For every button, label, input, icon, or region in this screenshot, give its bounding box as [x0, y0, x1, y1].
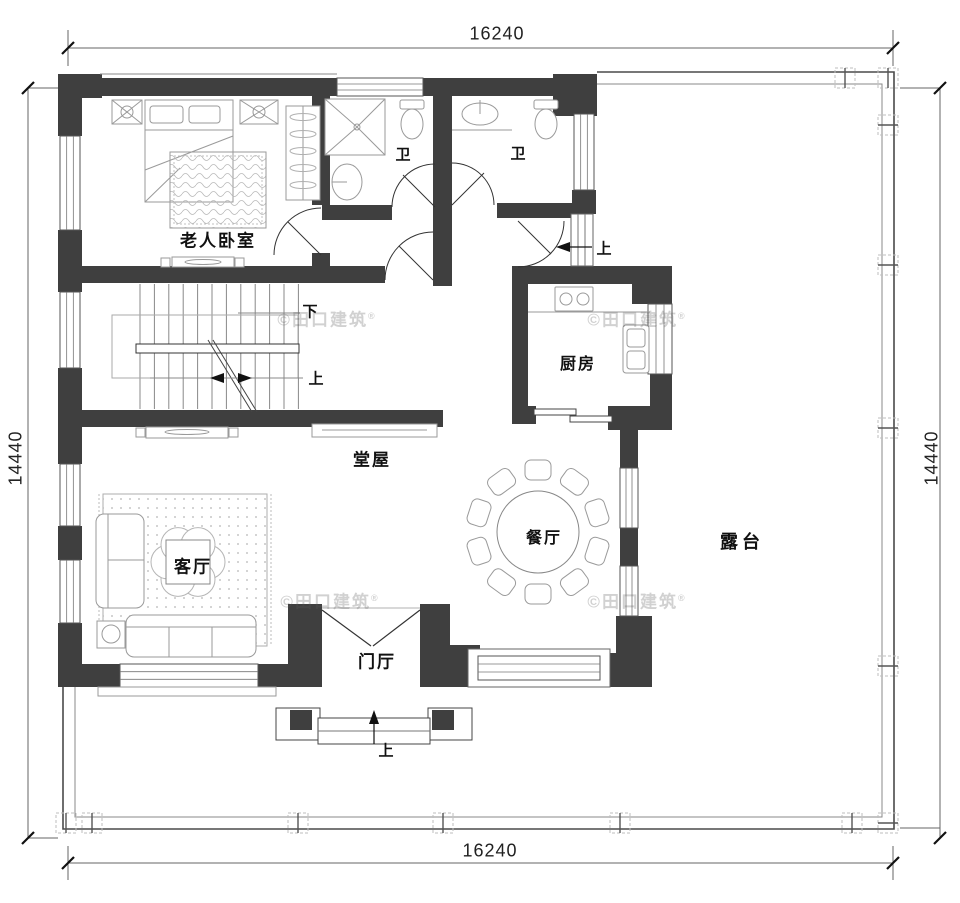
floor-plan: 16240 16240 14440 14440 老人卧室 卫 卫 厨房 堂屋 客…	[0, 0, 960, 903]
toilet	[535, 109, 557, 139]
dining-chair	[485, 466, 518, 497]
window	[120, 664, 258, 687]
side-steps-up-label: 上	[596, 238, 611, 259]
wall-segment	[620, 424, 638, 468]
stair-arrow	[238, 373, 252, 383]
wall-segment	[620, 528, 638, 566]
room-label-bath1: 卫	[395, 144, 410, 165]
room-label-bedroom: 老人卧室	[180, 227, 256, 252]
door-arc	[452, 173, 484, 205]
bath2-fixtures	[452, 100, 558, 139]
dimension-bottom: 16240	[462, 841, 517, 862]
door-arc	[288, 222, 321, 255]
window	[620, 468, 638, 528]
dining-chair	[525, 584, 551, 604]
sliding-door	[534, 409, 576, 415]
porch-column	[290, 710, 312, 730]
dining-chair	[466, 497, 493, 528]
dimension-right: 14440	[922, 430, 943, 485]
watermark-text: ©田口建筑	[587, 311, 678, 330]
door-arc	[518, 221, 551, 254]
toilet	[401, 109, 423, 139]
wall-segment	[288, 604, 322, 687]
watermark: ©田口建筑®	[280, 588, 379, 613]
dining-chair	[485, 566, 518, 597]
room-label-terrace: 露台	[720, 528, 764, 554]
wall-segment	[58, 664, 120, 687]
watermark-mark: ®	[678, 311, 687, 321]
wall-segment	[433, 90, 452, 286]
hall-furniture	[312, 424, 437, 437]
wall-segment	[58, 78, 337, 96]
room-label-dining: 餐厅	[526, 524, 562, 548]
room-label-foyer: 门厅	[358, 648, 396, 673]
window	[60, 464, 80, 526]
watermark-mark: ®	[368, 311, 377, 321]
watermark: ©田口建筑®	[587, 588, 686, 613]
wall-segment	[632, 266, 672, 304]
wall-segment	[650, 374, 672, 406]
dining-chair	[558, 466, 591, 497]
dimension-top: 16240	[469, 24, 524, 45]
wall-segment	[616, 616, 652, 660]
dining-chair	[466, 536, 493, 567]
door-arc	[373, 610, 420, 646]
room-label-hall: 堂屋	[353, 446, 391, 471]
window	[60, 136, 80, 230]
wall-segment	[312, 253, 330, 268]
door-arc	[403, 175, 435, 207]
stairs	[112, 284, 303, 412]
sliding-door	[570, 416, 612, 422]
up-arrow	[369, 710, 379, 724]
wall-segment	[572, 190, 596, 214]
watermark-text: ©田口建筑	[277, 311, 368, 330]
door-arc	[399, 246, 433, 280]
watermark-mark: ®	[678, 593, 687, 603]
wall-segment	[58, 526, 82, 560]
window	[60, 292, 80, 368]
porch-column	[432, 710, 454, 730]
door-arc	[322, 610, 371, 646]
dining-chair	[525, 460, 551, 480]
window	[60, 560, 80, 623]
dimension-left: 14440	[6, 430, 27, 485]
watermark: ©田口建筑®	[587, 306, 686, 331]
wall-segment	[58, 266, 385, 283]
wall-segment	[512, 284, 528, 406]
living-furniture	[96, 427, 271, 657]
wall-segment	[497, 203, 573, 218]
dining-chair	[558, 566, 591, 597]
wall-segment	[553, 74, 597, 116]
window	[478, 656, 600, 680]
stairs-up-label: 上	[308, 368, 323, 389]
room-label-bath2: 卫	[510, 143, 525, 164]
dining-chair	[583, 536, 610, 567]
window	[574, 114, 594, 190]
dining-chair	[583, 497, 610, 528]
watermark-text: ©田口建筑	[280, 593, 371, 612]
room-label-living: 客厅	[174, 553, 212, 578]
watermark-mark: ®	[371, 593, 380, 603]
bedroom-rug	[170, 152, 266, 228]
front-steps-up-label: 上	[378, 740, 393, 761]
room-label-kitchen: 厨房	[560, 350, 596, 374]
window	[337, 78, 423, 96]
wall-segment	[322, 205, 392, 220]
floor-plan-drawing	[0, 0, 960, 903]
watermark: ©田口建筑®	[277, 306, 376, 331]
wall-segment	[512, 266, 634, 284]
stair-rail	[136, 344, 299, 353]
watermark-text: ©田口建筑	[587, 593, 678, 612]
wall-segment	[512, 406, 536, 424]
wall-segment	[608, 406, 672, 430]
wall-segment	[58, 78, 82, 136]
